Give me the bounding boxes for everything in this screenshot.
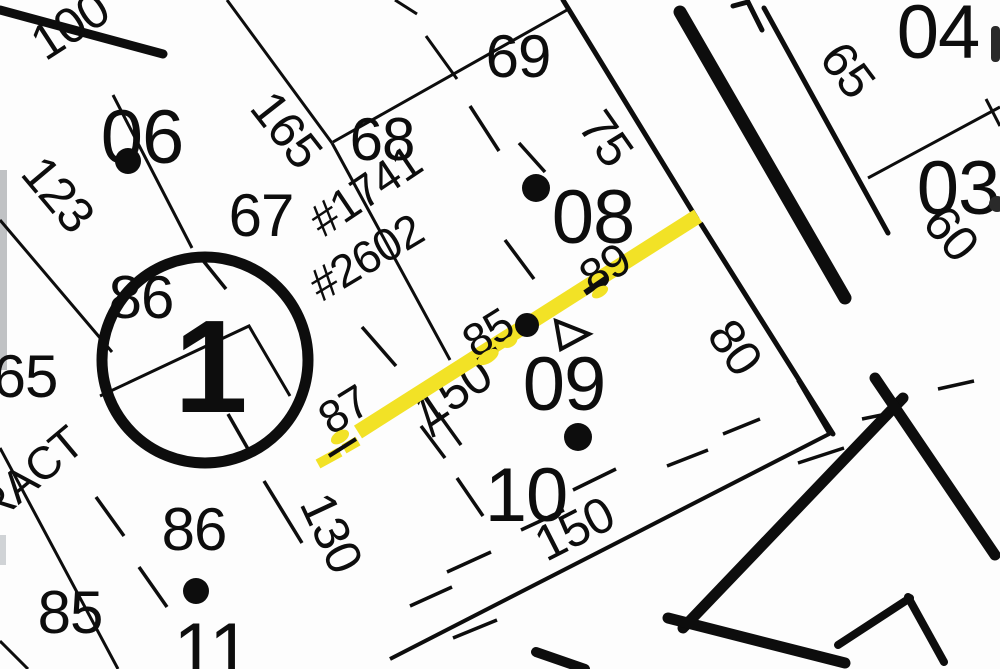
lot-number-86-lower[interactable]: 86 xyxy=(162,496,227,563)
dimension-label: 65 xyxy=(0,343,57,410)
parcel-point xyxy=(115,148,141,174)
scan-artifact xyxy=(0,170,7,370)
scan-artifact xyxy=(0,535,6,565)
map-canvas[interactable]: 100 06 123 165 67 68 69 #1741 #2602 86 6… xyxy=(0,0,1000,669)
boundary-point xyxy=(515,313,539,337)
lot-number-85[interactable]: 85 xyxy=(38,579,103,646)
lot-number-67[interactable]: 67 xyxy=(229,182,294,249)
plat-map: 100 06 123 165 67 68 69 #1741 #2602 86 6… xyxy=(0,0,1000,669)
block-number: 1 xyxy=(174,293,247,440)
lot-number-09[interactable]: 09 xyxy=(523,342,606,427)
lot-number-69[interactable]: 69 xyxy=(486,23,551,90)
lot-number-04[interactable]: 04 xyxy=(897,0,980,75)
parcel-point xyxy=(183,578,209,604)
lot-number-06[interactable]: 06 xyxy=(101,95,184,180)
parcel-point xyxy=(564,423,592,451)
clipped-digit-mark xyxy=(991,26,1000,62)
parcel-point xyxy=(522,174,550,202)
lot-number-11[interactable]: 11 xyxy=(174,608,251,669)
